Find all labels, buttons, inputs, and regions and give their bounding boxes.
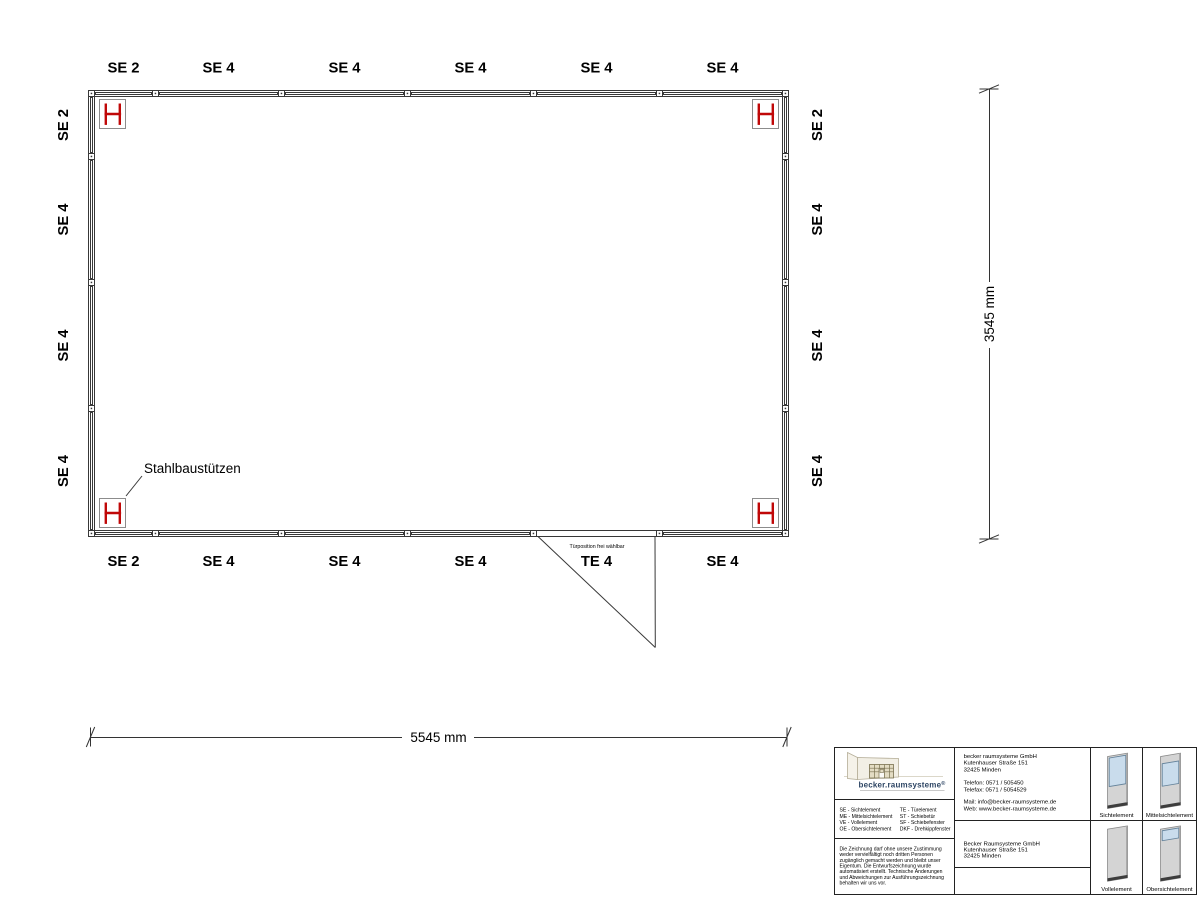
svg-text:ME - Mittelsichtelement: ME - Mittelsichtelement	[840, 814, 894, 820]
svg-text:behalten wir uns vor.: behalten wir uns vor.	[840, 880, 887, 886]
svg-text:Kutenhauser Straße 151: Kutenhauser Straße 151	[964, 761, 1028, 767]
svg-text:SE 2: SE 2	[107, 554, 139, 570]
svg-text:SE 4: SE 4	[706, 61, 739, 77]
svg-text:Vollelement: Vollelement	[1101, 887, 1132, 893]
svg-text:SE 4: SE 4	[454, 61, 487, 77]
svg-text:SE 4: SE 4	[56, 329, 72, 362]
svg-text:Telefax: 0571 / 5054529: Telefax: 0571 / 5054529	[964, 788, 1027, 794]
svg-text:Stahlbaustützen: Stahlbaustützen	[144, 461, 241, 476]
svg-text:SE 4: SE 4	[328, 554, 361, 570]
svg-text:SE 4: SE 4	[810, 454, 826, 487]
svg-text:32425 Minden: 32425 Minden	[964, 853, 1001, 859]
svg-text:TE 4: TE 4	[581, 554, 613, 570]
svg-text:TE - Türelement: TE - Türelement	[900, 808, 937, 814]
svg-text:VE - Vollelement: VE - Vollelement	[840, 820, 878, 826]
svg-text:Sichtelement: Sichtelement	[1099, 813, 1133, 819]
svg-text:OE - Obersichtelement: OE - Obersichtelement	[840, 826, 892, 832]
svg-text:becker.raumsysteme®: becker.raumsysteme®	[859, 780, 946, 790]
svg-text:SE 4: SE 4	[328, 61, 361, 77]
svg-text:SE 4: SE 4	[810, 203, 826, 236]
svg-text:3545 mm: 3545 mm	[982, 286, 997, 342]
svg-text:Mittelsichtelement: Mittelsichtelement	[1146, 813, 1194, 819]
svg-text:becker raumsysteme GmbH: becker raumsysteme GmbH	[964, 754, 1037, 760]
svg-text:SE 4: SE 4	[454, 554, 487, 570]
svg-text:SE - Sichtelement: SE - Sichtelement	[840, 808, 881, 814]
svg-text:Obersichtelement: Obersichtelement	[1146, 887, 1193, 893]
svg-text:32425 Minden: 32425 Minden	[964, 768, 1001, 774]
svg-text:ST - Schiebetür: ST - Schiebetür	[900, 814, 936, 820]
svg-text:Telefon: 0571 / 505450: Telefon: 0571 / 505450	[964, 781, 1025, 787]
svg-text:SE 4: SE 4	[56, 203, 72, 236]
svg-text:SF - Schiebefenster: SF - Schiebefenster	[900, 820, 945, 826]
svg-text:Mail: info@becker-raumsysteme.: Mail: info@becker-raumsysteme.de	[964, 800, 1057, 806]
svg-text:SE 2: SE 2	[810, 109, 826, 141]
svg-text:SE 4: SE 4	[706, 554, 739, 570]
svg-text:SE 2: SE 2	[107, 61, 139, 77]
svg-text:5545 mm: 5545 mm	[410, 730, 466, 745]
svg-text:SE 4: SE 4	[810, 329, 826, 362]
svg-text:DKF - Drehkippfenster: DKF - Drehkippfenster	[900, 826, 951, 832]
svg-text:Web: www.becker-raumsysteme.de: Web: www.becker-raumsysteme.de	[964, 806, 1057, 812]
svg-text:Türposition frei wählbar: Türposition frei wählbar	[569, 544, 624, 550]
svg-text:SE 4: SE 4	[202, 61, 235, 77]
svg-text:SE 4: SE 4	[56, 454, 72, 487]
svg-text:SE 4: SE 4	[580, 61, 613, 77]
svg-text:SE 2: SE 2	[56, 109, 72, 141]
svg-text:SE 4: SE 4	[202, 554, 235, 570]
